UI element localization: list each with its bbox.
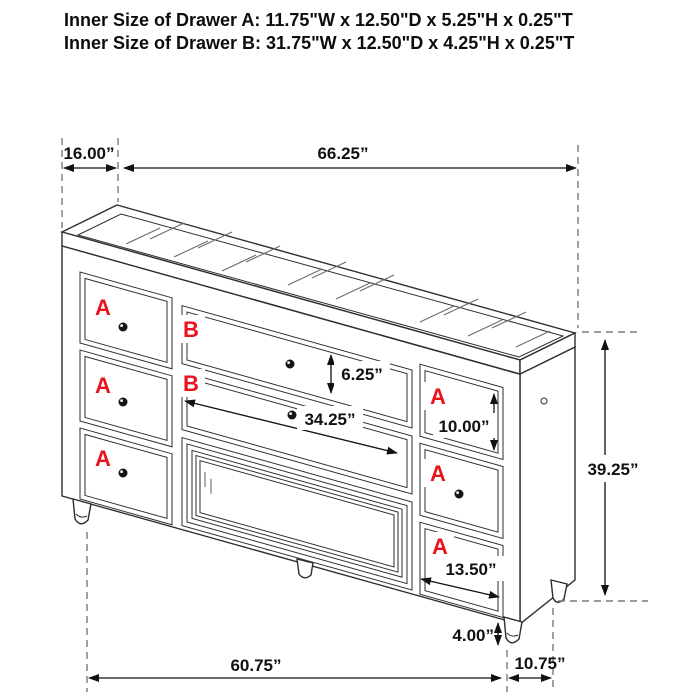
label-drawer-a6: A xyxy=(432,534,448,559)
dim-base-depth-value: 10.75” xyxy=(514,654,565,673)
label-drawer-a4: A xyxy=(430,384,446,409)
dim-base-width-value: 60.75” xyxy=(230,656,281,675)
dim-drawer-b-height-value: 6.25” xyxy=(341,365,383,384)
right-side-panel xyxy=(520,347,575,624)
label-drawer-b2: B xyxy=(183,371,199,396)
dim-drawer-a-right-width-value: 13.50” xyxy=(445,560,496,579)
dim-top-depth-value: 16.00” xyxy=(63,144,114,163)
dim-leg-height: 4.00” xyxy=(452,623,498,645)
knob xyxy=(119,469,128,478)
knob xyxy=(455,490,464,499)
dim-drawer-a-right-height-value: 10.00” xyxy=(438,417,489,436)
knob xyxy=(288,411,297,420)
center-leg xyxy=(297,559,313,578)
front-right-leg xyxy=(504,617,522,643)
back-right-leg xyxy=(551,580,567,602)
dim-overall-height-value: 39.25” xyxy=(587,460,638,479)
knob xyxy=(119,323,128,332)
front-left-leg xyxy=(73,499,91,524)
dim-drawer-b-width-value: 34.25” xyxy=(304,410,355,429)
label-drawer-a1: A xyxy=(95,295,111,320)
label-drawer-b1: B xyxy=(183,317,199,342)
label-drawer-a3: A xyxy=(95,446,111,471)
knob xyxy=(119,398,128,407)
dimension-diagram-page: Inner Size of Drawer A: 11.75"W x 12.50"… xyxy=(0,0,700,700)
dim-leg-height-value: 4.00” xyxy=(452,626,494,645)
knob xyxy=(286,360,295,369)
dim-top-width-value: 66.25” xyxy=(317,144,368,163)
label-drawer-a2: A xyxy=(95,373,111,398)
dresser-diagram: A A A B B A A A 16.00” xyxy=(0,0,700,700)
label-drawer-a5: A xyxy=(430,461,446,486)
